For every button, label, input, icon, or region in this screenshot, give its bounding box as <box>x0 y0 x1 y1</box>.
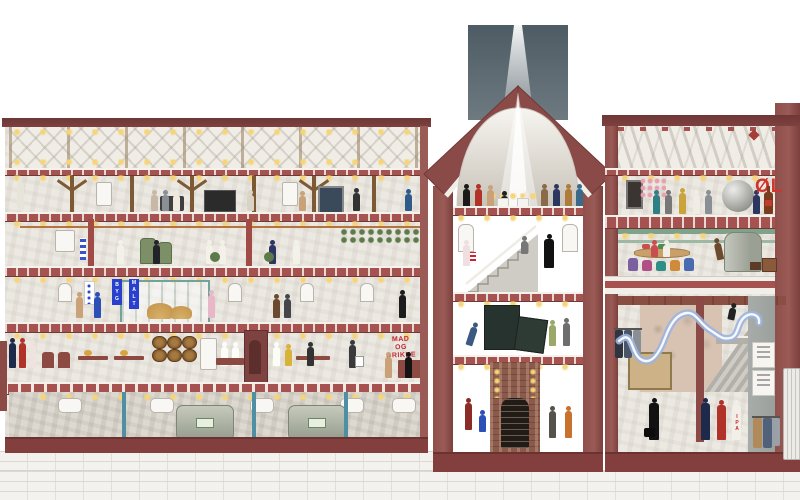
food <box>120 350 128 356</box>
kiln-lights-right <box>530 368 536 398</box>
teal-pipe <box>344 392 348 437</box>
barrel <box>182 349 197 362</box>
striped-banner <box>80 238 86 260</box>
leaning-artwork <box>514 316 548 354</box>
tower2-lights <box>458 215 580 222</box>
right-block-coping <box>602 115 800 126</box>
person <box>548 406 557 438</box>
window <box>58 283 72 302</box>
person <box>283 294 292 318</box>
brew-window <box>55 230 75 252</box>
jacket <box>763 418 772 448</box>
person <box>404 352 413 378</box>
restaurant-lights <box>14 333 420 340</box>
food <box>84 350 92 356</box>
person <box>18 338 27 368</box>
person <box>540 184 549 207</box>
person <box>664 190 673 214</box>
person <box>172 190 181 211</box>
bottle-neck <box>767 186 770 193</box>
attic-window <box>96 182 112 206</box>
person <box>93 292 102 318</box>
person <box>478 410 487 432</box>
barrel <box>182 336 197 349</box>
radiator <box>783 368 800 460</box>
pouf <box>670 260 680 271</box>
tower-foundation-band <box>433 452 603 472</box>
person <box>716 400 727 440</box>
display-board <box>752 370 775 396</box>
arched-window <box>562 224 578 252</box>
timber-post <box>372 176 376 212</box>
barrel <box>167 336 182 349</box>
attic-screen <box>204 190 236 212</box>
child <box>662 240 671 257</box>
ipa-text: IPA <box>734 414 740 432</box>
timber-post <box>70 176 74 212</box>
shaft-door <box>249 340 261 374</box>
grain-pile <box>170 306 192 319</box>
ipa-mark: IPA <box>734 414 740 432</box>
person <box>75 292 84 318</box>
right-foundation-band <box>605 452 800 472</box>
bottle-label <box>765 200 772 206</box>
window <box>228 283 242 302</box>
display-case <box>628 352 672 390</box>
malt-banner-text: MALT <box>131 280 137 308</box>
timber-post <box>130 176 134 212</box>
malt-banner: MALT <box>129 279 139 309</box>
counter <box>216 358 244 365</box>
display-board <box>752 342 775 368</box>
person <box>548 320 557 346</box>
timber-post <box>190 176 194 212</box>
stair-landing <box>716 336 748 344</box>
person <box>152 240 161 264</box>
floor-slab <box>5 266 428 277</box>
person <box>562 318 571 346</box>
table <box>78 356 108 360</box>
person <box>28 340 37 368</box>
child <box>650 240 659 257</box>
brewer <box>116 240 125 264</box>
jacket <box>772 418 780 446</box>
kiln-oven <box>501 398 529 448</box>
brewer <box>292 240 301 264</box>
person <box>678 188 687 214</box>
floor-slab <box>605 215 775 229</box>
person <box>246 190 255 211</box>
striped-bag <box>470 252 476 261</box>
person <box>564 184 573 207</box>
person <box>652 190 661 214</box>
barrel <box>167 349 182 362</box>
person <box>161 190 170 211</box>
person-bending <box>465 321 481 347</box>
person <box>384 352 393 378</box>
barrel <box>152 349 167 362</box>
foundation-brick <box>0 470 800 500</box>
tower-wall-left <box>433 186 453 452</box>
person <box>150 190 159 211</box>
person <box>700 398 711 440</box>
person <box>692 190 701 214</box>
statue <box>16 177 25 211</box>
left-foundation-band <box>5 437 428 453</box>
person <box>564 406 573 438</box>
brewer <box>218 240 227 264</box>
pouf <box>656 261 666 271</box>
pouf <box>628 258 638 271</box>
person <box>520 236 529 254</box>
person <box>398 290 407 318</box>
attic-lights <box>14 175 420 182</box>
travel-bag <box>644 428 655 437</box>
byg-banner: BYG <box>112 279 122 305</box>
tower-wall-right <box>583 186 603 452</box>
plant <box>210 252 220 262</box>
exterior-pipe <box>0 341 7 411</box>
eave-light-string <box>14 159 420 166</box>
slab-red-core <box>605 281 775 288</box>
person <box>552 184 561 207</box>
timber-post <box>312 176 316 212</box>
person <box>207 290 216 318</box>
person <box>306 342 315 366</box>
red-column <box>246 219 252 266</box>
red-armchair <box>42 352 54 368</box>
jacket <box>615 330 623 358</box>
barrel <box>152 336 167 349</box>
hop-garland <box>340 228 420 244</box>
window <box>300 283 314 302</box>
left-block-right-wall <box>420 126 428 437</box>
jacket <box>633 330 641 356</box>
sphere-sculpture <box>722 180 754 212</box>
floor-slab <box>5 322 428 333</box>
window <box>360 283 374 302</box>
table <box>114 356 144 360</box>
cellist <box>352 188 361 211</box>
malt-lights <box>14 277 420 284</box>
crate <box>750 262 761 270</box>
tank-label <box>196 418 214 428</box>
basement-window <box>58 398 82 413</box>
chef <box>272 342 281 366</box>
person <box>284 344 293 366</box>
tank-label <box>308 418 326 428</box>
person <box>404 189 413 211</box>
person <box>575 184 584 207</box>
attic-window <box>282 182 298 206</box>
door <box>200 338 217 370</box>
pouf <box>684 258 694 271</box>
basement-window <box>150 398 174 413</box>
attic-artwork <box>318 186 344 215</box>
person <box>8 338 17 368</box>
byg-banner-text: BYG <box>114 282 120 303</box>
left-block-coping <box>2 118 431 127</box>
building-section-illustration: BYG MALT MAD OG DRIKKE <box>0 0 800 500</box>
jacket <box>624 330 632 358</box>
teal-pipe <box>122 392 126 437</box>
crate <box>762 258 777 272</box>
person <box>272 294 281 318</box>
kiln-lights-left <box>494 368 500 398</box>
person <box>474 184 483 207</box>
plant <box>264 252 274 262</box>
pouf <box>642 260 652 271</box>
basement-window <box>392 398 416 413</box>
person <box>704 190 713 214</box>
red-column <box>88 219 94 266</box>
person <box>462 184 471 207</box>
person-long-coat <box>543 234 555 268</box>
jacket <box>753 418 762 448</box>
roof-light-string <box>14 129 420 136</box>
person <box>486 185 495 207</box>
person-reaching <box>464 398 473 430</box>
person <box>298 191 307 211</box>
red-armchair <box>58 352 70 368</box>
shopping-bag <box>355 356 364 367</box>
table-items <box>642 244 650 249</box>
teal-pipe <box>252 392 256 437</box>
